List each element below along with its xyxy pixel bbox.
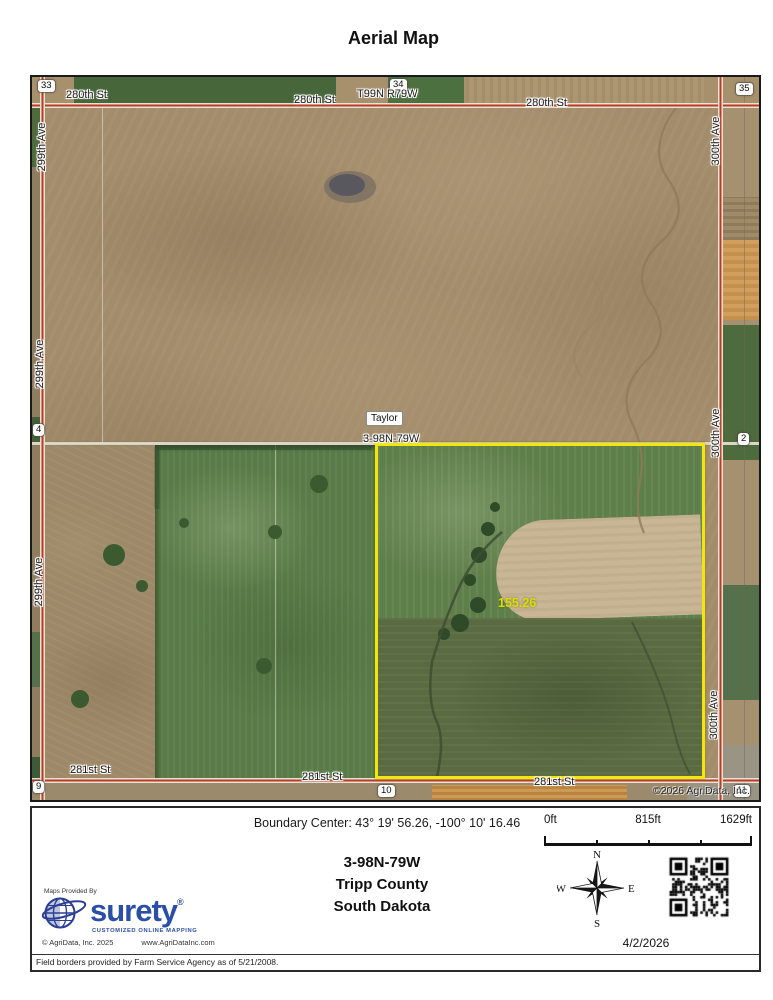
township-label-top: T99N R79W — [357, 88, 418, 100]
section-badge-9: 9 — [33, 781, 44, 793]
road-280th-st — [32, 103, 759, 108]
scale-tick — [750, 836, 752, 846]
place-label-taylor: Taylor — [366, 411, 403, 426]
svg-text:N: N — [593, 849, 601, 861]
scale-tick — [544, 836, 546, 846]
section-badge-35: 35 — [736, 83, 753, 95]
street-label-300th: 300th Ave — [708, 685, 720, 745]
svg-text:E: E — [628, 883, 635, 895]
scale-tick — [700, 840, 702, 846]
road-299th-ave — [40, 77, 45, 800]
disclaimer-text: Field borders provided by Farm Service A… — [36, 957, 278, 967]
svg-text:S: S — [594, 918, 600, 930]
scale-tick — [648, 840, 650, 846]
street-label-280th: 280th St — [66, 89, 107, 101]
svg-text:W: W — [557, 883, 567, 895]
street-label-281st: 281st St — [302, 771, 342, 783]
section-badge-2: 2 — [738, 433, 749, 445]
street-label-281st: 281st St — [70, 764, 110, 776]
street-label-299th: 299th Ave — [36, 117, 48, 177]
street-label-300th: 300th Ave — [710, 403, 722, 463]
scale-label-max: 1629ft — [720, 814, 752, 826]
qr-code — [667, 855, 731, 919]
map-footer: Boundary Center: 43° 19' 56.26, -100° 10… — [30, 806, 761, 972]
parcel-boundary — [375, 443, 705, 779]
map-copyright: ©2026 AgriData, Inc. — [620, 785, 750, 797]
street-label-280th: 280th St — [526, 97, 567, 109]
street-label-281st: 281st St — [534, 776, 574, 788]
page-title: Aerial Map — [30, 28, 757, 49]
footer-divider — [32, 954, 759, 955]
brand-name: surety — [90, 893, 177, 928]
provider-website: www.AgriDataInc.com — [141, 938, 214, 947]
section-badge-4: 4 — [33, 424, 44, 436]
street-label-299th: 299th Ave — [34, 334, 46, 394]
provider-copyright: © AgriData, Inc. 2025 — [42, 938, 113, 947]
acreage-label: 155.26 — [498, 596, 536, 610]
brand-subtitle: CUSTOMIZED ONLINE MAPPING — [92, 928, 280, 934]
scale-label-mid: 815ft — [635, 814, 661, 826]
provider-block: Maps Provided By surety® CUSTOMIZED ONLI… — [40, 888, 280, 947]
street-label-300th: 300th Ave — [710, 111, 722, 171]
aerial-map-page: Aerial Map — [0, 0, 773, 1000]
compass-icon: N S E W — [557, 846, 637, 930]
street-label-299th: 299th Ave — [33, 552, 45, 612]
registered-mark: ® — [177, 897, 184, 907]
township-label-mid: 3-98N-79W — [363, 433, 419, 445]
location-trs: 3-98N-79W — [182, 852, 582, 874]
scale-label-zero: 0ft — [544, 814, 557, 826]
map-canvas: 280th St 280th St 280th St 281st St 281s… — [30, 75, 761, 802]
section-badge-33: 33 — [38, 80, 55, 92]
street-label-280th: 280th St — [294, 94, 335, 106]
scale-bar: 0ft 815ft 1629ft — [544, 814, 752, 846]
section-badge-10: 10 — [378, 785, 395, 797]
map-date: 4/2/2026 — [566, 936, 726, 950]
trail-line — [102, 103, 103, 443]
compass-rose: N S E W — [557, 846, 637, 930]
surety-logo: surety® — [40, 895, 280, 931]
globe-icon — [40, 895, 90, 931]
